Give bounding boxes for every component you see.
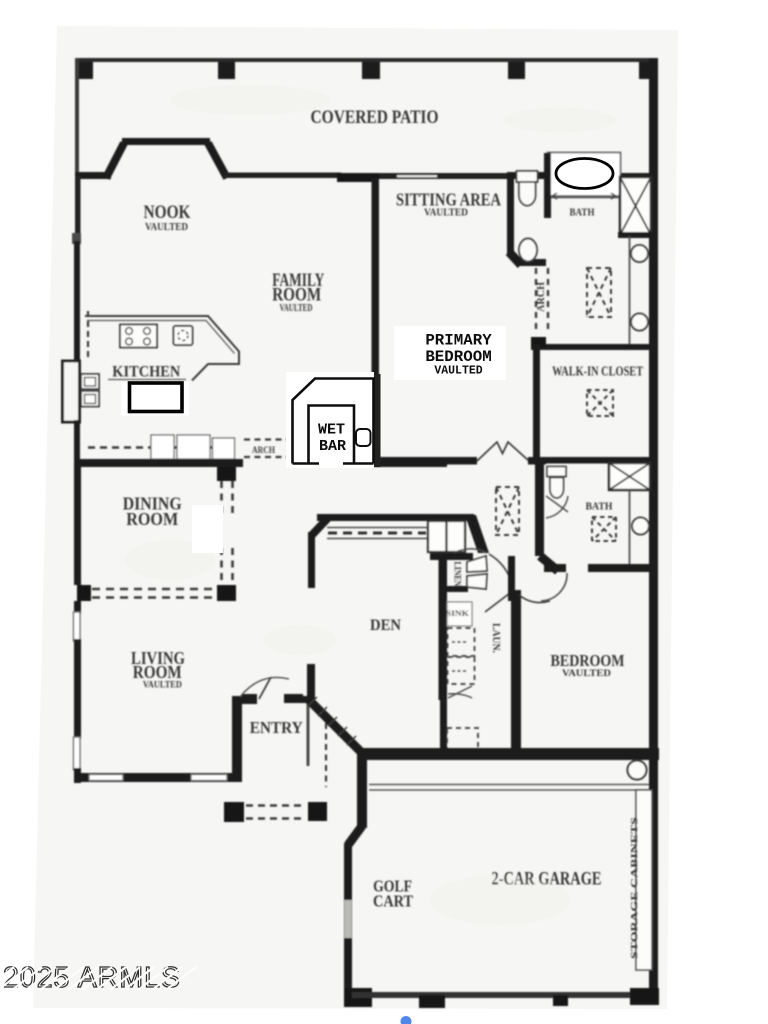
svg-text:VAULTED: VAULTED [562,669,611,679]
svg-text:VAULTED: VAULTED [280,303,313,314]
svg-text:BATH: BATH [586,501,613,513]
svg-text:ARCH: ARCH [536,282,547,312]
svg-text:PRIMARY: PRIMARY [425,332,492,350]
svg-text:STORAGE CABINETS: STORAGE CABINETS [631,817,641,959]
svg-text:NOOK: NOOK [144,202,191,223]
svg-text:COVERED PATIO: COVERED PATIO [311,108,439,128]
svg-text:ROOM: ROOM [133,662,182,682]
svg-text:BATH: BATH [570,208,595,219]
svg-text:VAULTED: VAULTED [434,365,482,378]
svg-text:CART: CART [373,892,413,911]
svg-text:2-CAR GARAGE: 2-CAR GARAGE [492,869,602,890]
svg-text:LINEN: LINEN [453,562,463,587]
svg-text:VAULTED: VAULTED [143,681,182,691]
svg-text:BEDROOM: BEDROOM [551,651,625,670]
svg-text:SITTING AREA: SITTING AREA [396,190,501,210]
svg-text:VAULTED: VAULTED [424,208,468,219]
svg-text:ARCH: ARCH [252,445,275,455]
svg-text:VAULTED: VAULTED [145,221,188,233]
svg-text:WALK-IN CLOSET: WALK-IN CLOSET [552,364,643,379]
svg-text:ROOM: ROOM [126,509,178,529]
svg-text:WET: WET [318,422,345,439]
svg-text:BAR: BAR [319,438,346,455]
svg-text:SINK: SINK [446,609,470,618]
svg-text:KITCHEN: KITCHEN [112,364,180,381]
svg-text:BEDROOM: BEDROOM [425,348,491,366]
svg-text:ENTRY: ENTRY [250,718,303,737]
svg-text:LAUN.: LAUN. [490,623,501,653]
svg-text:DEN: DEN [370,617,401,634]
